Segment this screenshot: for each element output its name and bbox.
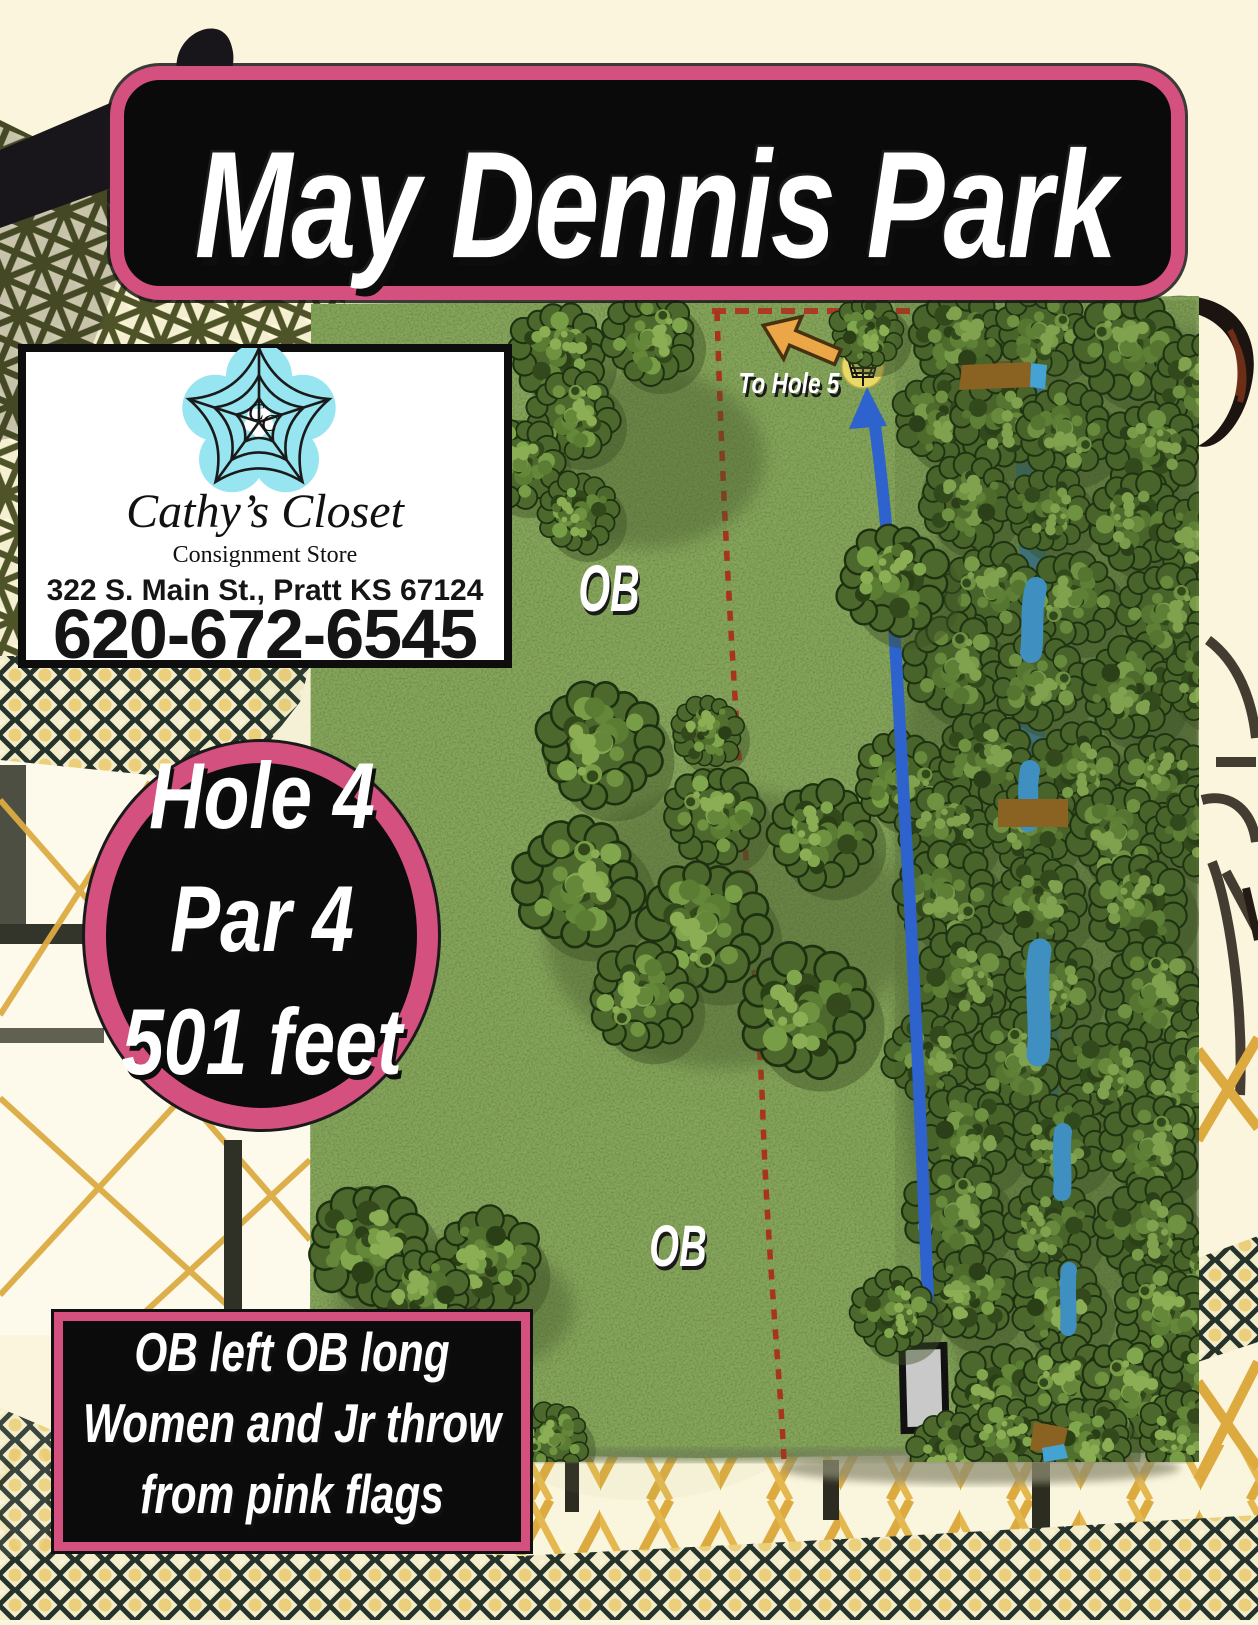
svg-text:To Hole 5: To Hole 5: [739, 366, 840, 399]
svg-text:OB: OB: [649, 1215, 706, 1279]
svg-text:OB: OB: [578, 551, 639, 626]
svg-text:C: C: [261, 411, 278, 437]
